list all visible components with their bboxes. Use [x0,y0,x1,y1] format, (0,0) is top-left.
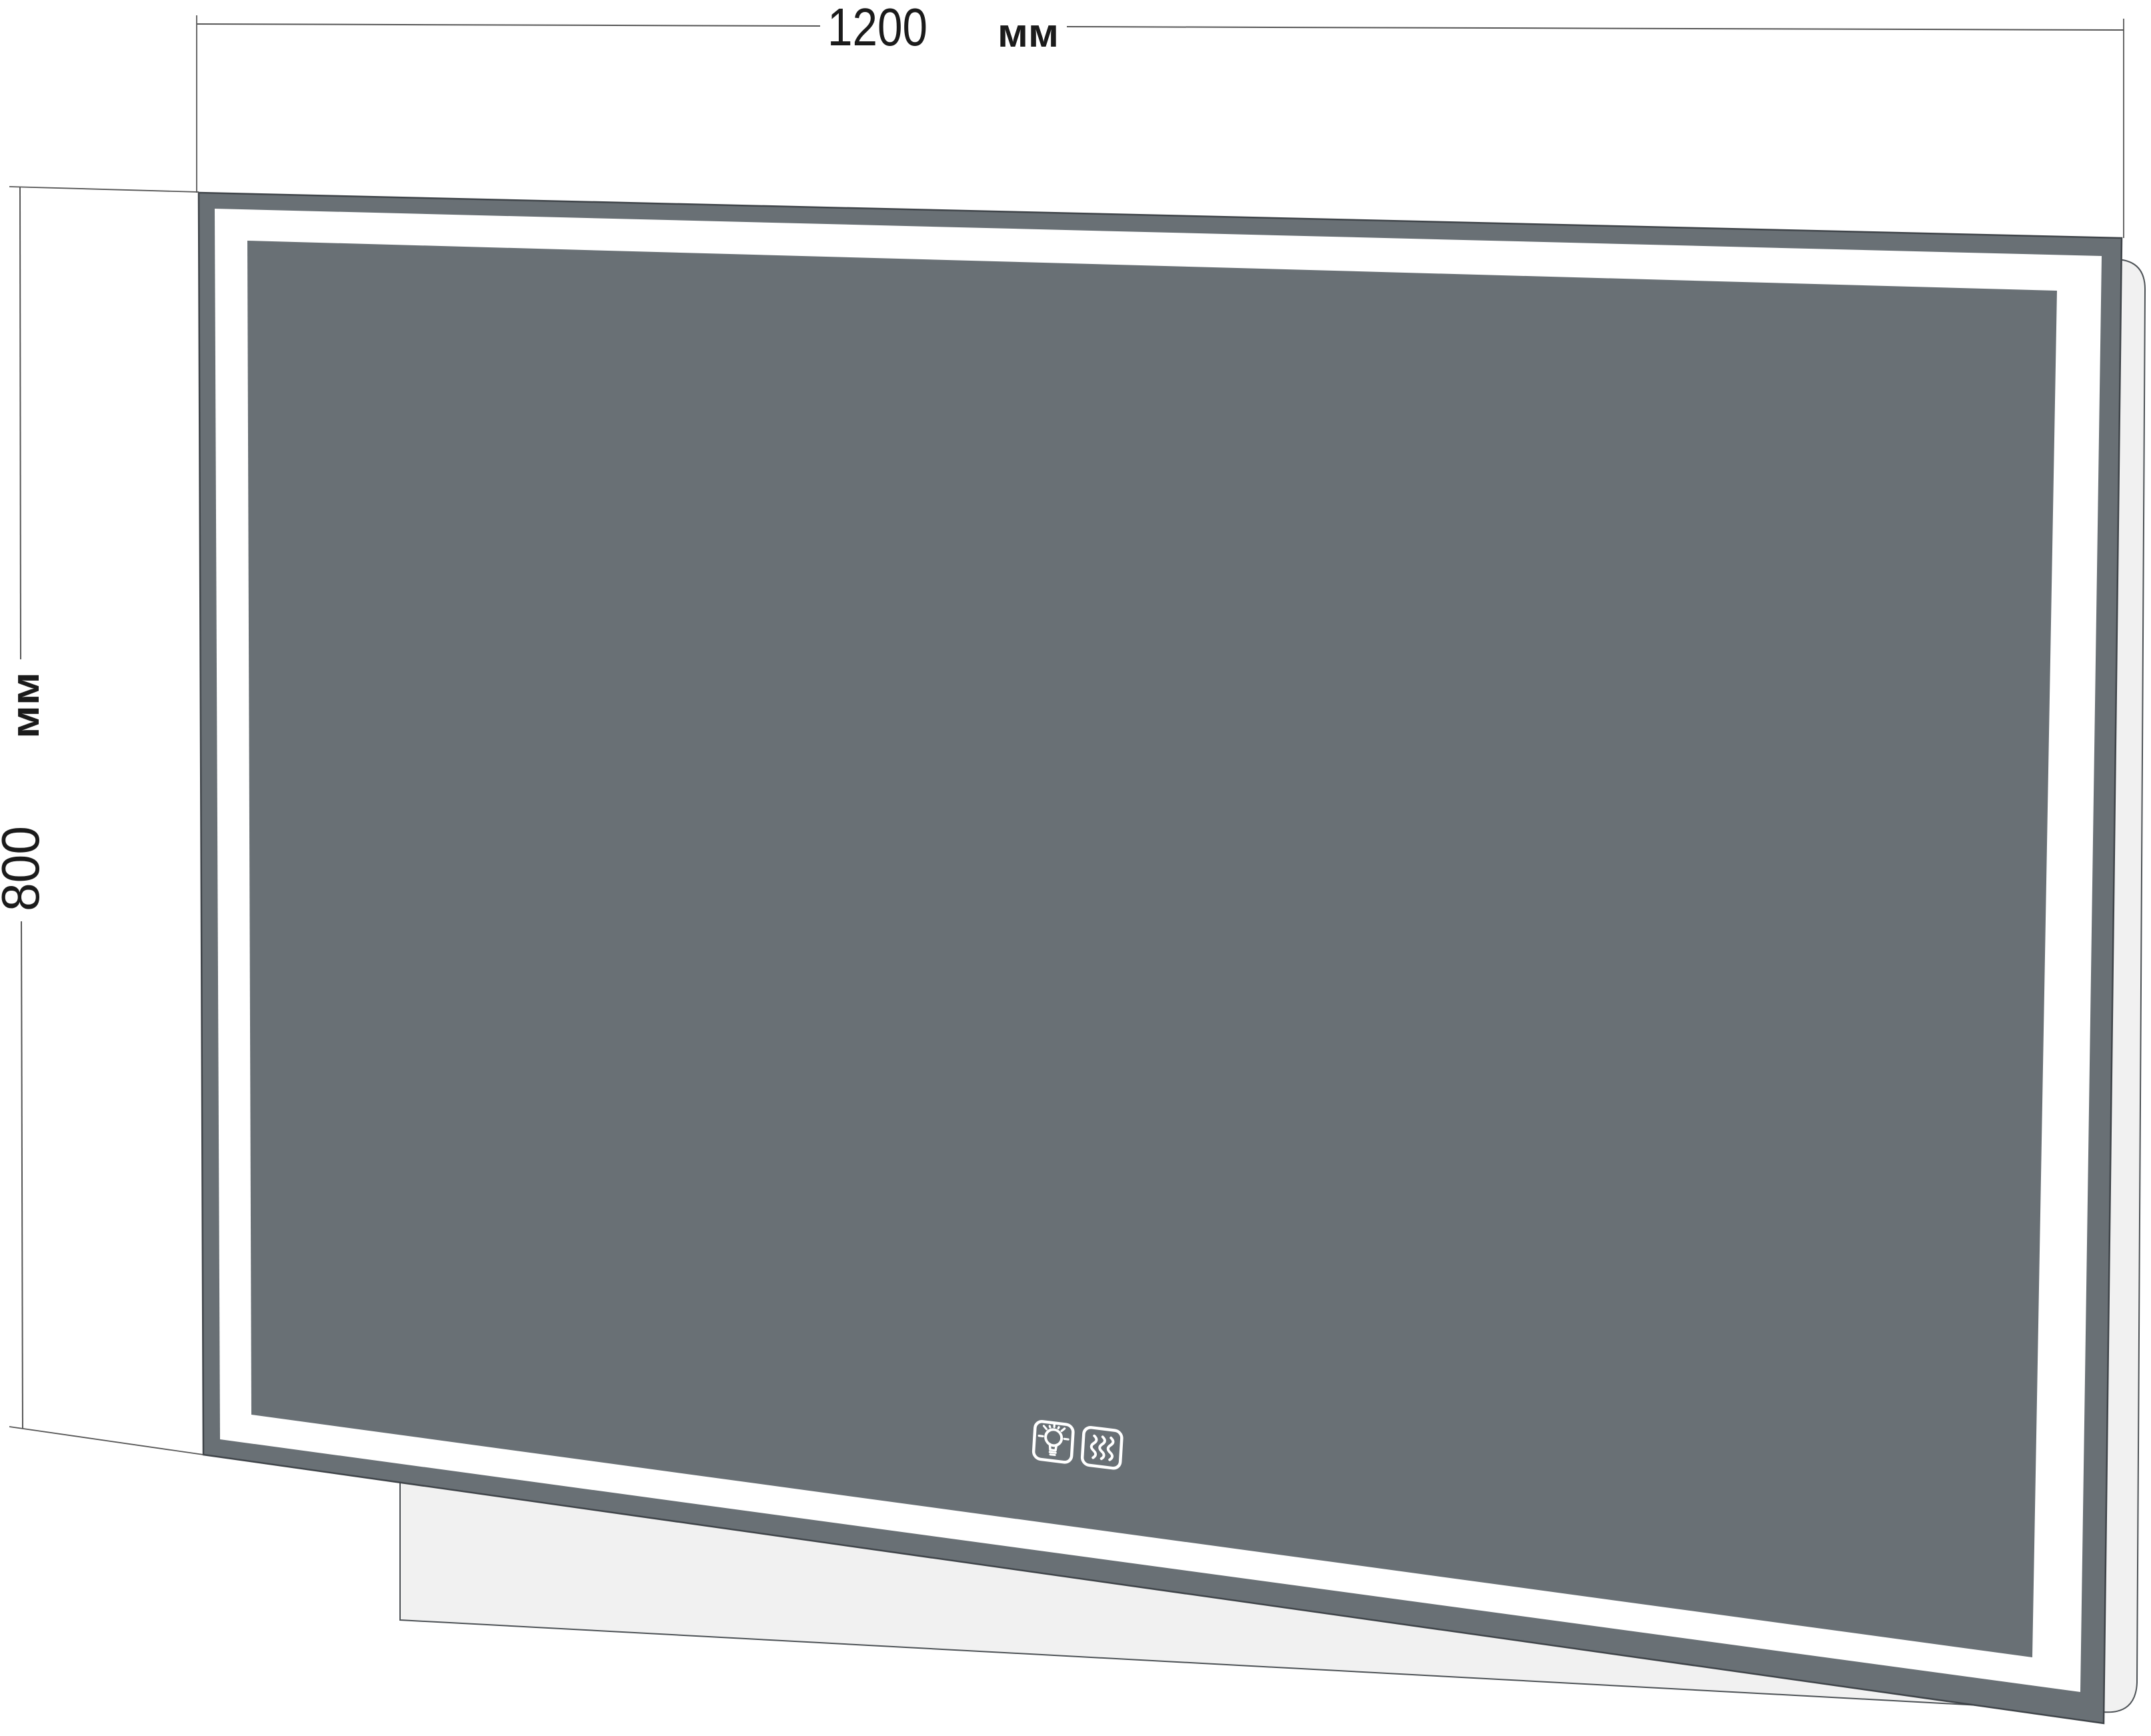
product-diagram: 1200 мм 800 мм [0,0,2151,1736]
mirror-surface [247,241,2057,1657]
mirror-illustration: 1200 мм 800 мм [0,0,2151,1736]
height-dimension-line-top [20,187,21,659]
height-value: 800 [0,826,50,911]
height-unit: мм [4,672,47,739]
height-dimension-line-bottom [21,921,23,1429]
height-extension-line-top [9,187,199,192]
width-unit: мм [997,11,1059,55]
width-dimension-line-right [1067,27,2124,30]
height-dimension: 800 мм [0,187,203,1455]
width-dimension-line-left [197,24,820,26]
height-extension-line-bottom [9,1427,203,1455]
width-value: 1200 [827,0,927,57]
